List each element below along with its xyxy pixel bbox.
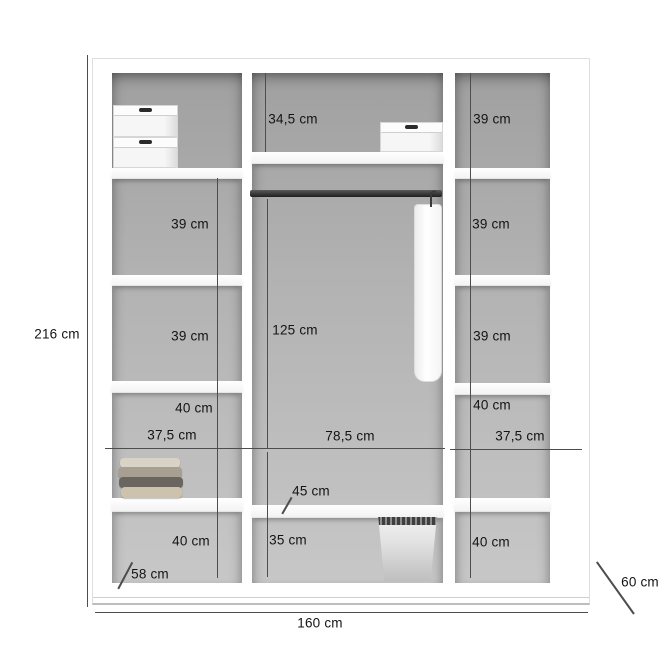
box-handle-slot-icon: [405, 125, 418, 129]
dimension-label: 39 cm: [473, 112, 511, 127]
basket-rim: [377, 517, 438, 525]
middle-hanging-extent-line: [267, 199, 268, 448]
left-extent-line: [217, 178, 218, 578]
stacked-box-top: [113, 105, 178, 137]
overall-height-label: 216 cm: [34, 327, 79, 342]
left-shelf-2: [112, 275, 242, 286]
left-width-dimension-line: [105, 448, 244, 449]
dimension-label: 37,5 cm: [495, 429, 544, 444]
hanging-shirt: [414, 204, 442, 382]
dimension-label: 78,5 cm: [325, 429, 374, 444]
dimension-label: 39 cm: [473, 329, 511, 344]
box-handle-slot-icon: [139, 140, 152, 144]
left-shelf-1: [112, 168, 242, 179]
hanger-hook-icon: [423, 189, 439, 207]
middle-top-shelf: [252, 152, 443, 164]
dimension-label: 40 cm: [175, 401, 213, 416]
depth-left-label: 58 cm: [131, 567, 169, 582]
plinth-edge-line: [93, 597, 589, 598]
box-handle-slot-icon: [139, 108, 152, 112]
dimension-label: 39 cm: [171, 217, 209, 232]
storage-box: [380, 122, 443, 152]
dimension-label: 35 cm: [269, 533, 307, 548]
dimension-label: 39 cm: [171, 329, 209, 344]
wardrobe-dimension-diagram: 39 cm 39 cm 40 cm 37,5 cm 40 cm 34,5 cm …: [0, 0, 665, 665]
hanging-rod: [250, 190, 442, 197]
left-shelf-3: [112, 381, 242, 393]
dimension-label: 40 cm: [472, 535, 510, 550]
right-width-dimension-line: [450, 449, 582, 450]
dimension-label: 39 cm: [472, 217, 510, 232]
middle-width-dimension-line: [240, 448, 445, 449]
dimension-label: 45 cm: [292, 484, 330, 499]
right-extent-line: [470, 73, 471, 578]
dimension-label: 125 cm: [272, 323, 317, 338]
dimension-label: 34,5 cm: [268, 112, 317, 127]
stacked-box-bottom: [113, 137, 178, 168]
left-shelf-4: [112, 498, 242, 512]
middle-bottom-shelf: [252, 505, 443, 518]
width-dimension-line: [95, 612, 588, 613]
folded-garment: [121, 487, 182, 498]
dimension-label: 40 cm: [172, 534, 210, 549]
middle-bottom-extent-line: [267, 452, 268, 577]
middle-top-extent-line: [265, 73, 266, 152]
height-dimension-line: [87, 55, 88, 607]
depth-right-label: 60 cm: [621, 575, 659, 590]
dimension-label: 37,5 cm: [147, 428, 196, 443]
overall-width-label: 160 cm: [297, 616, 342, 631]
dimension-label: 40 cm: [473, 398, 511, 413]
laundry-basket: [377, 517, 438, 581]
